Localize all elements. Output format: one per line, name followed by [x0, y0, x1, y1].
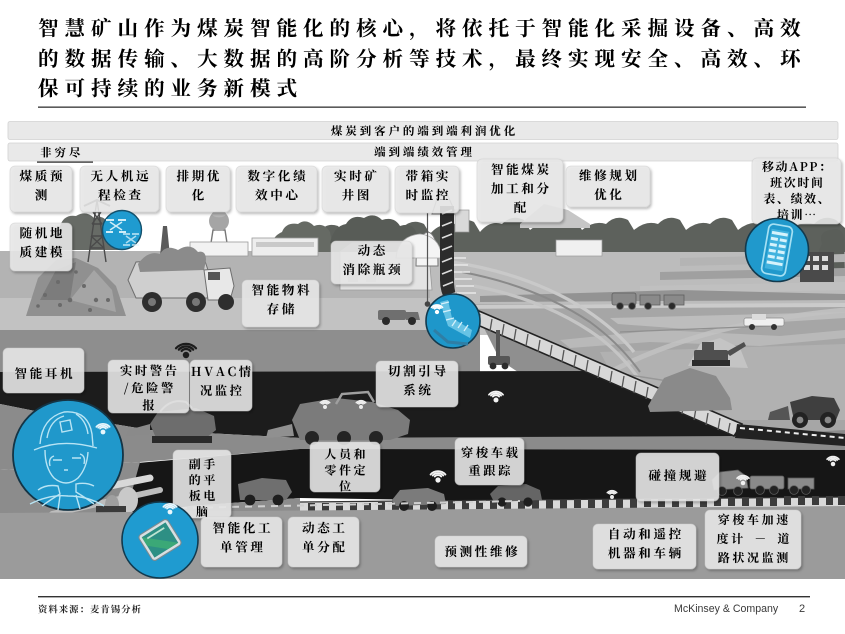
svg-text:2: 2: [799, 603, 805, 615]
svg-text:McKinsey & Company: McKinsey & Company: [674, 603, 779, 615]
